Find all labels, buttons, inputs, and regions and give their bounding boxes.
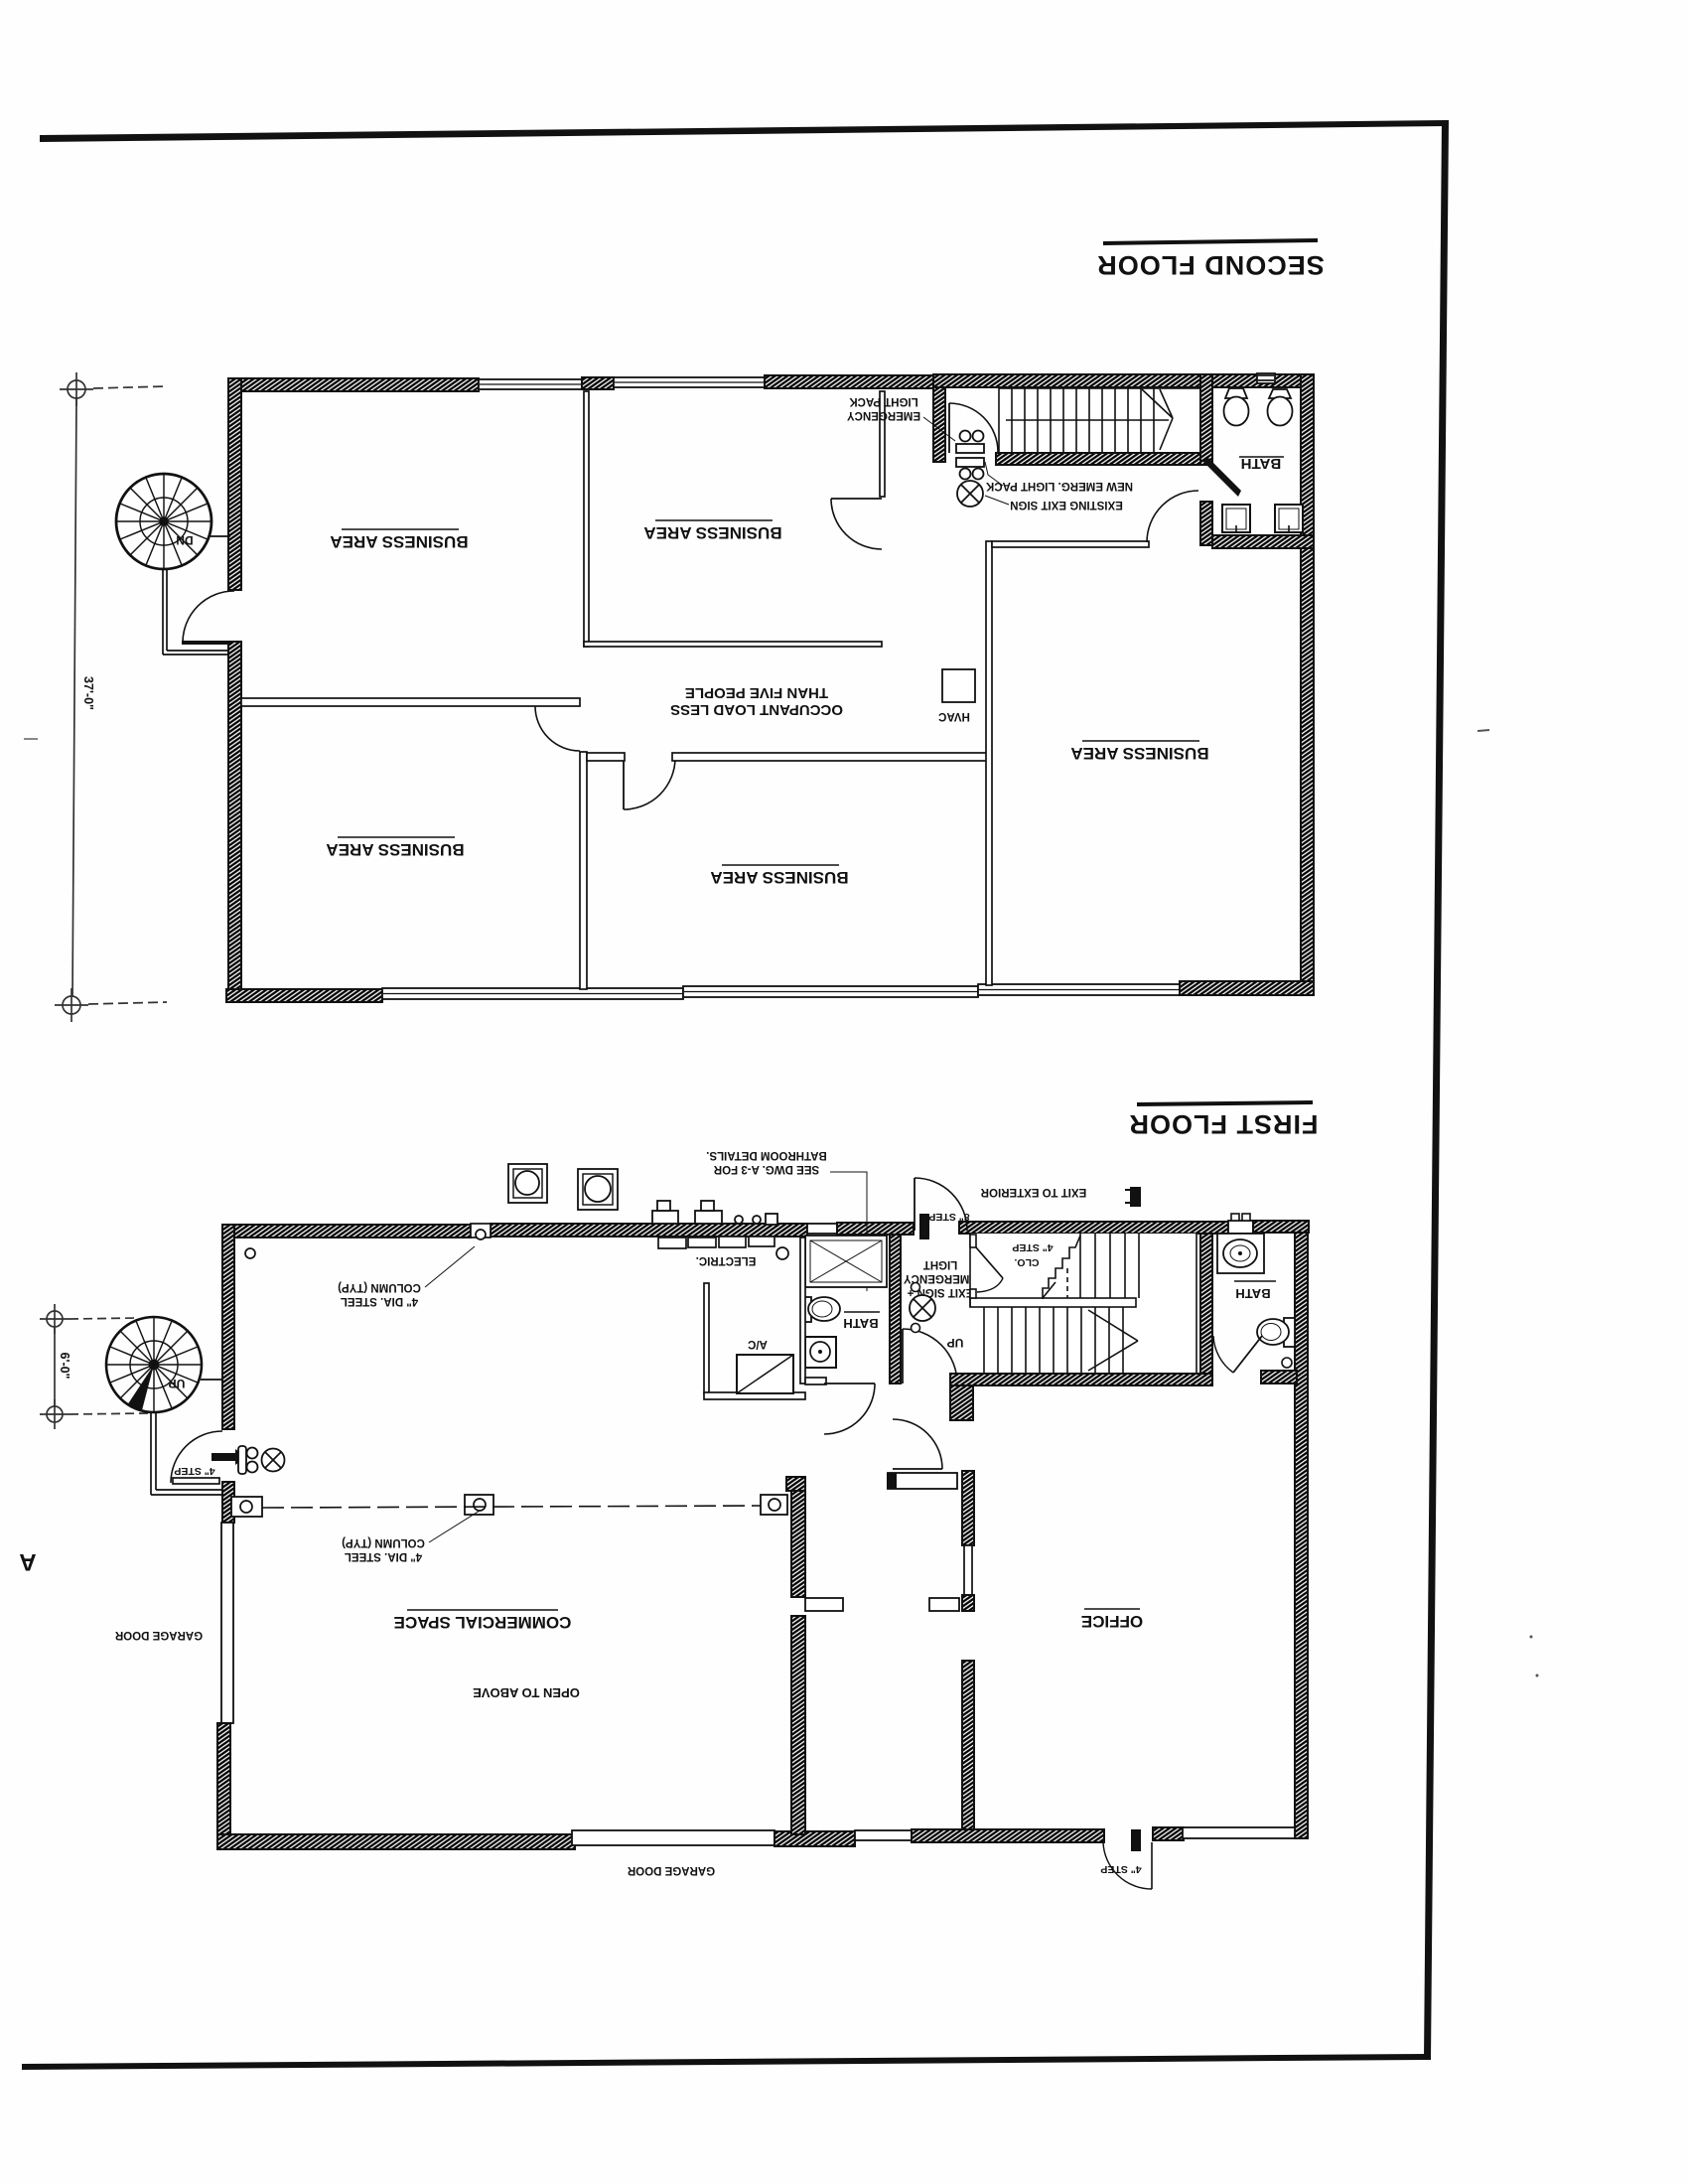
svg-text:HVAC: HVAC xyxy=(938,710,970,722)
svg-text:BUSINESS AREA: BUSINESS AREA xyxy=(326,840,464,859)
svg-text:8" STEP: 8" STEP xyxy=(928,1211,969,1223)
svg-text:THAN FIVE PEOPLE: THAN FIVE PEOPLE xyxy=(685,684,828,701)
svg-text:SEE DWG. A-3 FOR: SEE DWG. A-3 FOR xyxy=(713,1163,819,1175)
svg-text:BATHROOM DETAILS.: BATHROOM DETAILS. xyxy=(706,1149,827,1161)
svg-text:UP: UP xyxy=(169,1377,186,1390)
svg-text:OFFICE: OFFICE xyxy=(1081,1612,1143,1631)
svg-text:EXIT TO EXTERIOR: EXIT TO EXTERIOR xyxy=(980,1186,1086,1198)
svg-text:4" DIA. STEEL: 4" DIA. STEEL xyxy=(341,1295,418,1307)
svg-text:FIRST FLOOR: FIRST FLOOR xyxy=(1129,1109,1319,1139)
svg-text:NEW EMERG. LIGHT PACK: NEW EMERG. LIGHT PACK xyxy=(985,480,1133,492)
svg-text:EMERGENCY: EMERGENCY xyxy=(847,409,920,421)
svg-text:BUSINESS AREA: BUSINESS AREA xyxy=(710,868,848,887)
svg-text:BUSINESS AREA: BUSINESS AREA xyxy=(1070,744,1208,763)
svg-text:UP: UP xyxy=(947,1336,964,1350)
svg-text:COLUMN (TYP): COLUMN (TYP) xyxy=(338,1281,421,1293)
svg-text:CLO.: CLO. xyxy=(1014,1256,1039,1268)
svg-text:EXISTING EXIT SIGN: EXISTING EXIT SIGN xyxy=(1010,499,1123,510)
svg-text:BATH: BATH xyxy=(1235,1286,1270,1301)
svg-text:SECOND FLOOR: SECOND FLOOR xyxy=(1096,250,1325,280)
svg-text:6'-0": 6'-0" xyxy=(58,1353,71,1380)
svg-text:A/C: A/C xyxy=(748,1338,768,1350)
svg-text:LIGHT PACK: LIGHT PACK xyxy=(849,395,918,407)
svg-text:GARAGE DOOR: GARAGE DOOR xyxy=(114,1629,203,1641)
svg-text:BUSINESS AREA: BUSINESS AREA xyxy=(330,532,468,551)
svg-text:BATH: BATH xyxy=(843,1316,878,1331)
svg-text:4" STEP: 4" STEP xyxy=(1012,1241,1053,1253)
svg-text:OPEN TO ABOVE: OPEN TO ABOVE xyxy=(473,1685,580,1700)
svg-text:4" STEP: 4" STEP xyxy=(1100,1863,1141,1875)
svg-text:COMMERCIAL SPACE: COMMERCIAL SPACE xyxy=(394,1613,572,1632)
svg-text:37'-0": 37'-0" xyxy=(81,676,95,710)
svg-text:GARAGE DOOR: GARAGE DOOR xyxy=(627,1864,715,1876)
svg-text:4" DIA. STEEL: 4" DIA. STEEL xyxy=(345,1550,422,1562)
svg-text:LIGHT: LIGHT xyxy=(923,1258,958,1270)
svg-text:BUSINESS AREA: BUSINESS AREA xyxy=(643,523,781,542)
svg-text:OCCUPANT LOAD LESS: OCCUPANT LOAD LESS xyxy=(670,701,843,718)
svg-text:DN: DN xyxy=(176,533,193,547)
svg-text:ELECTRIC.: ELECTRIC. xyxy=(696,1254,757,1266)
svg-text:COLUMN (TYP): COLUMN (TYP) xyxy=(342,1536,425,1548)
svg-text:4" STEP: 4" STEP xyxy=(174,1465,214,1477)
svg-text:A: A xyxy=(19,1548,36,1575)
